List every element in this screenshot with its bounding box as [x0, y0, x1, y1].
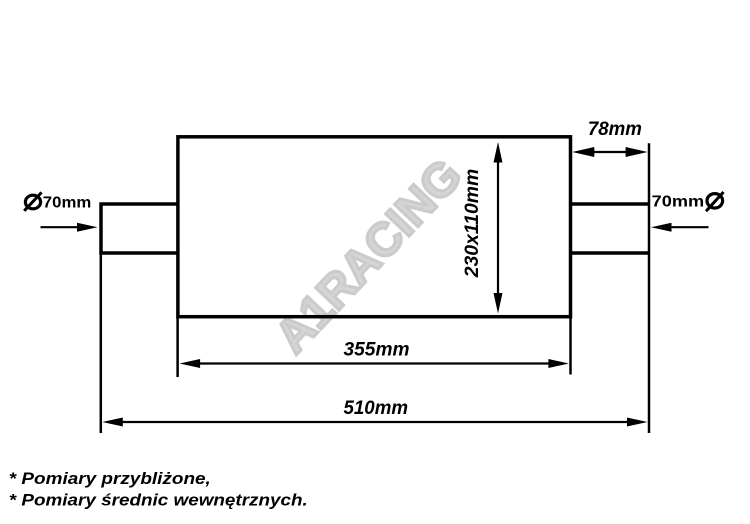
svg-text:510mm: 510mm [344, 398, 409, 419]
svg-text:355mm: 355mm [344, 338, 410, 360]
svg-text:70mm: 70mm [43, 194, 91, 211]
svg-text:70mm: 70mm [652, 194, 705, 211]
svg-text:78mm: 78mm [588, 119, 642, 140]
svg-text:230x110mm: 230x110mm [462, 169, 483, 279]
svg-text:* Pomiary średnic wewnętrznych: * Pomiary średnic wewnętrznych. [9, 491, 308, 509]
svg-text:* Pomiary przybliżone,: * Pomiary przybliżone, [9, 470, 211, 488]
